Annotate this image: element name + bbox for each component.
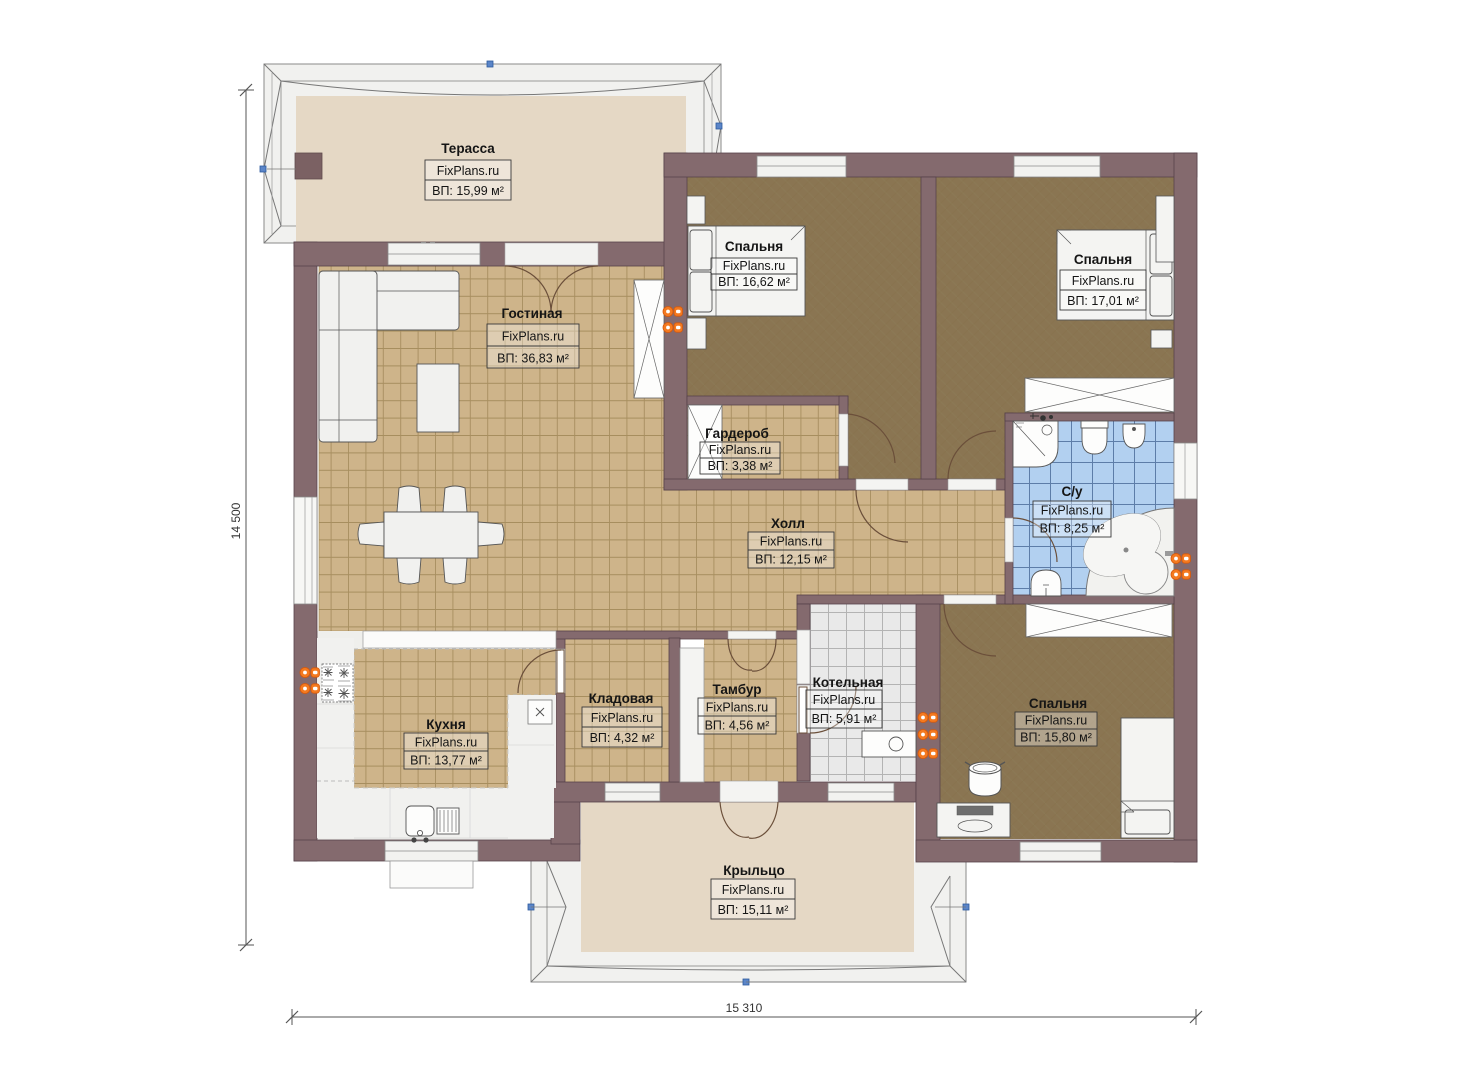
svg-text:ВП: 17,01 м²: ВП: 17,01 м²: [1067, 294, 1139, 308]
svg-text:FixPlans.ru: FixPlans.ru: [502, 329, 565, 343]
svg-text:ВП: 5,91 м²: ВП: 5,91 м²: [812, 712, 877, 726]
svg-text:ВП: 12,15 м²: ВП: 12,15 м²: [755, 552, 827, 566]
svg-text:ВП: 36,83 м²: ВП: 36,83 м²: [497, 351, 569, 365]
svg-text:Гардероб: Гардероб: [705, 426, 769, 441]
svg-text:Кухня: Кухня: [426, 717, 465, 732]
svg-text:ВП: 15,11 м²: ВП: 15,11 м²: [718, 903, 789, 917]
svg-text:FixPlans.ru: FixPlans.ru: [1072, 274, 1135, 288]
svg-text:Кладовая: Кладовая: [589, 691, 654, 706]
svg-text:FixPlans.ru: FixPlans.ru: [437, 164, 500, 178]
svg-text:ВП: 15,80 м²: ВП: 15,80 м²: [1020, 731, 1092, 745]
svg-text:ВП: 15,99 м²: ВП: 15,99 м²: [432, 184, 504, 198]
svg-text:Терасса: Терасса: [441, 141, 495, 156]
svg-text:FixPlans.ru: FixPlans.ru: [813, 693, 876, 707]
svg-text:Крыльцо: Крыльцо: [723, 863, 784, 878]
svg-text:Гостиная: Гостиная: [501, 306, 562, 321]
svg-text:FixPlans.ru: FixPlans.ru: [591, 711, 654, 725]
svg-text:FixPlans.ru: FixPlans.ru: [760, 534, 823, 548]
svg-text:Спальня: Спальня: [1074, 252, 1132, 267]
svg-text:Спальня: Спальня: [1029, 696, 1087, 711]
svg-text:FixPlans.ru: FixPlans.ru: [709, 443, 772, 457]
svg-text:Котельная: Котельная: [813, 675, 884, 690]
svg-text:ВП: 13,77 м²: ВП: 13,77 м²: [410, 753, 482, 767]
svg-text:Тамбур: Тамбур: [713, 682, 762, 697]
svg-text:Холл: Холл: [771, 516, 805, 531]
svg-text:FixPlans.ru: FixPlans.ru: [1041, 503, 1104, 517]
svg-text:15 310: 15 310: [726, 1001, 763, 1015]
svg-text:ВП: 16,62 м²: ВП: 16,62 м²: [718, 275, 790, 289]
svg-text:С/у: С/у: [1061, 484, 1083, 499]
svg-text:ВП: 8,25 м²: ВП: 8,25 м²: [1040, 521, 1105, 535]
svg-text:14 500: 14 500: [229, 502, 243, 539]
svg-text:FixPlans.ru: FixPlans.ru: [722, 883, 785, 897]
svg-text:Спальня: Спальня: [725, 239, 783, 254]
svg-text:ВП: 3,38 м²: ВП: 3,38 м²: [708, 459, 773, 473]
svg-text:FixPlans.ru: FixPlans.ru: [706, 700, 769, 714]
svg-text:ВП: 4,56 м²: ВП: 4,56 м²: [705, 718, 770, 732]
svg-text:ВП: 4,32 м²: ВП: 4,32 м²: [590, 731, 655, 745]
svg-text:FixPlans.ru: FixPlans.ru: [723, 259, 786, 273]
svg-text:FixPlans.ru: FixPlans.ru: [415, 735, 478, 749]
svg-text:FixPlans.ru: FixPlans.ru: [1025, 714, 1088, 728]
